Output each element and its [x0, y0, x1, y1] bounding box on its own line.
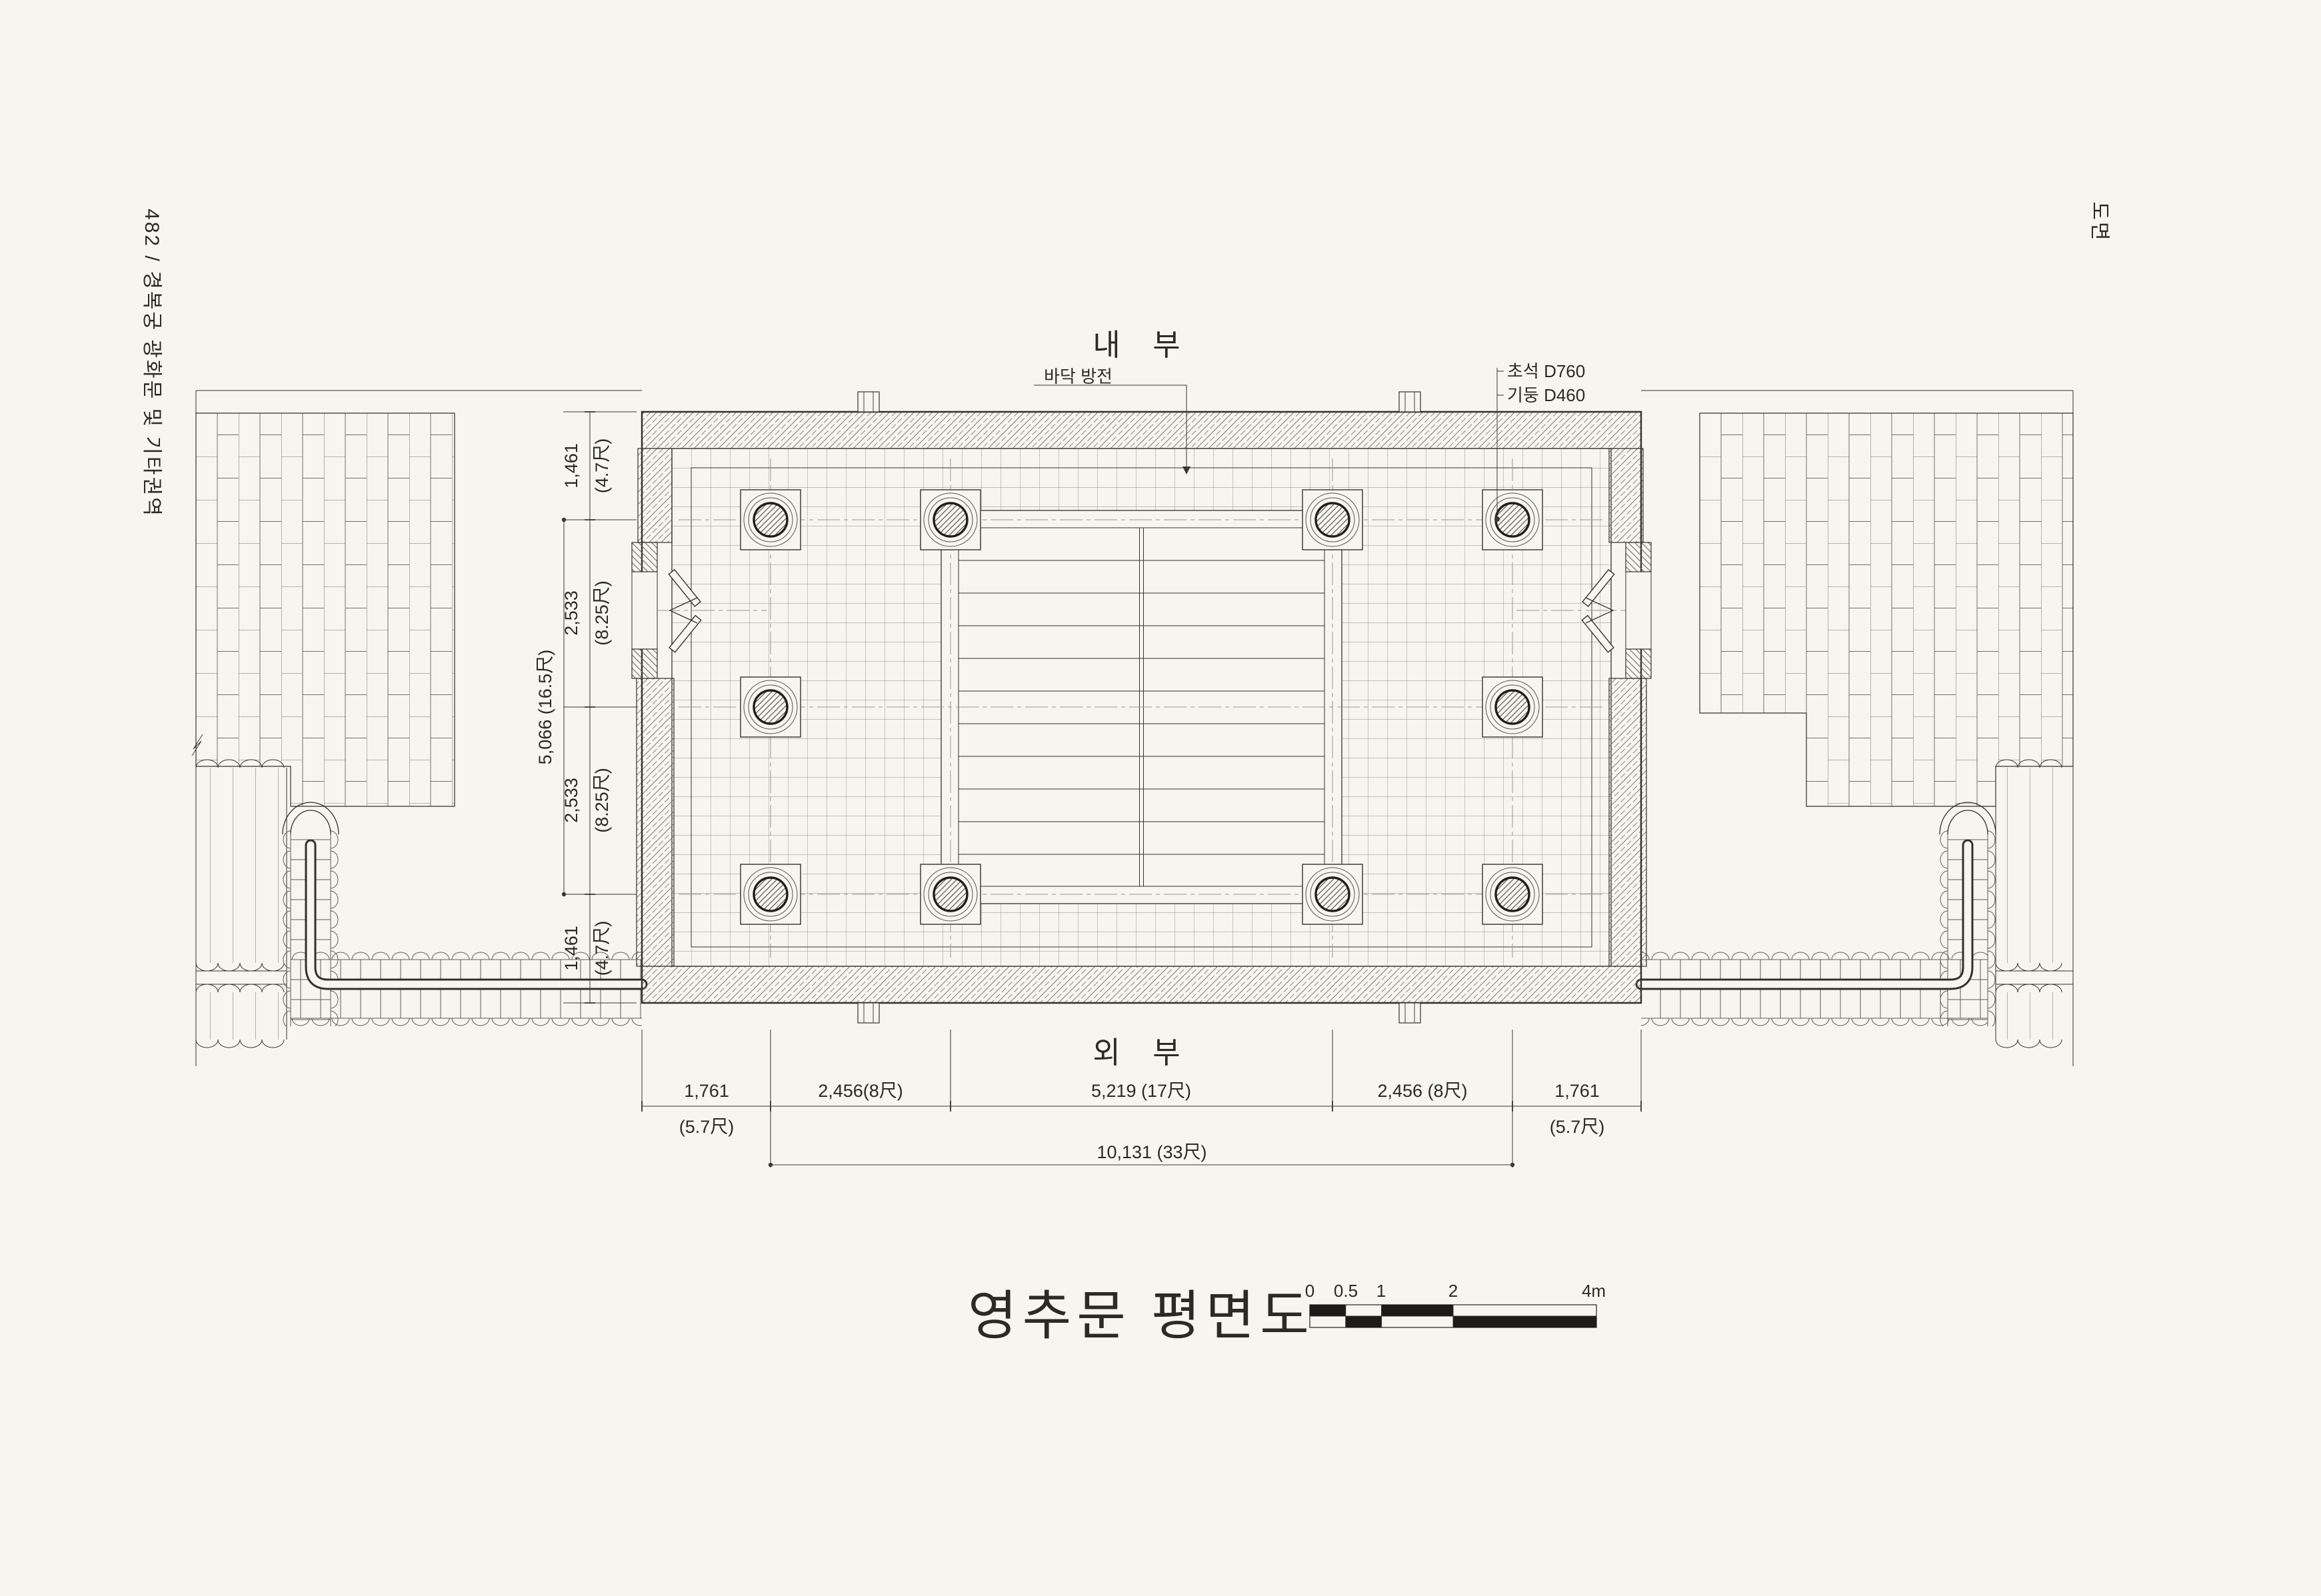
dim-value: 1,461: [561, 926, 581, 971]
extension-lines-left: [563, 412, 637, 1003]
column-base: [1302, 490, 1362, 550]
scale-tick-label: 4m: [1582, 1281, 1606, 1301]
jamb-stone: [1626, 542, 1651, 572]
scale-tick-label: 0.5: [1334, 1281, 1358, 1301]
column-base: [741, 677, 801, 737]
jamb-stone: [1626, 649, 1651, 678]
dim-total-left: 5,066 (16.5尺): [535, 650, 555, 765]
scale-bar: 0 0.5 1 2 4m: [1305, 1281, 1606, 1327]
dim-unit: (5.7尺): [679, 1117, 735, 1137]
interior-label: 내 부: [1093, 328, 1192, 362]
scanned-drawing-page: 482 / 경복궁 광화문 및 기타권역 도면 내 부 외 부 바닥 방전 초석…: [0, 0, 2321, 1596]
column-note: 기둥 D460: [1507, 385, 1585, 405]
dim-total-bottom: 10,131 (33尺): [1097, 1142, 1206, 1162]
column-base: [1482, 864, 1542, 924]
wall-bottom: [642, 966, 1641, 1003]
tile-wall-right-L: [1641, 802, 1996, 1026]
dim-value: 1,761: [1554, 1081, 1600, 1101]
floor-note: 바닥 방전: [1044, 367, 1113, 387]
door-pocket-left: [632, 572, 657, 649]
wall-left-upper: [638, 448, 672, 542]
column-base: [921, 864, 981, 924]
door-pocket-right: [1626, 572, 1651, 649]
dim-unit: (8.25尺): [592, 768, 612, 833]
column-base: [1482, 490, 1542, 550]
dim-value: 5,219 (17尺): [1091, 1081, 1191, 1101]
jamb-stone: [632, 649, 657, 678]
dim-unit: (4.7尺): [592, 438, 612, 494]
jamb-stone: [632, 542, 657, 572]
dim-value: 2,456(8尺): [818, 1081, 903, 1101]
dim-unit: (8.25尺): [592, 580, 612, 646]
dim-value: 1,461: [561, 443, 581, 488]
foundation-note: 초석 D760: [1507, 361, 1585, 381]
wall-top: [642, 412, 1641, 448]
page-corner-label: 도면: [2088, 201, 2110, 242]
scale-tick-label: 1: [1376, 1281, 1386, 1301]
drawing-title: 영추문 평면도: [968, 1286, 1314, 1345]
brick-paving-right: [1700, 413, 2073, 806]
dim-value: 2,456 (8尺): [1377, 1081, 1467, 1101]
tile-wall-far-right: [1996, 760, 2073, 1048]
dim-value: 2,533: [561, 590, 581, 636]
scale-tick-label: 2: [1448, 1281, 1458, 1301]
dim-unit: (5.7尺): [1550, 1117, 1605, 1137]
column-base: [1302, 864, 1362, 924]
column-base: [1482, 677, 1542, 737]
dim-value: 1,761: [684, 1081, 729, 1101]
brick-paving-left: [196, 413, 455, 806]
architectural-drawing: 482 / 경복궁 광화문 및 기타권역 도면 내 부 외 부 바닥 방전 초석…: [0, 0, 2321, 1596]
column-base: [921, 490, 981, 550]
exterior-label: 외 부: [1093, 1036, 1192, 1070]
leader-dot: [1494, 516, 1500, 522]
scale-tick-label: 0: [1305, 1281, 1314, 1301]
wall-right-upper: [1609, 448, 1643, 542]
dim-value: 2,533: [561, 778, 581, 823]
tile-wall-left-L: [283, 802, 642, 1026]
page-header: 482 / 경복궁 광화문 및 기타권역: [141, 209, 163, 518]
dim-unit: (4.7尺): [592, 921, 612, 976]
column-base: [741, 864, 801, 924]
column-base: [741, 490, 801, 550]
tile-wall-far-left: [196, 760, 287, 1048]
